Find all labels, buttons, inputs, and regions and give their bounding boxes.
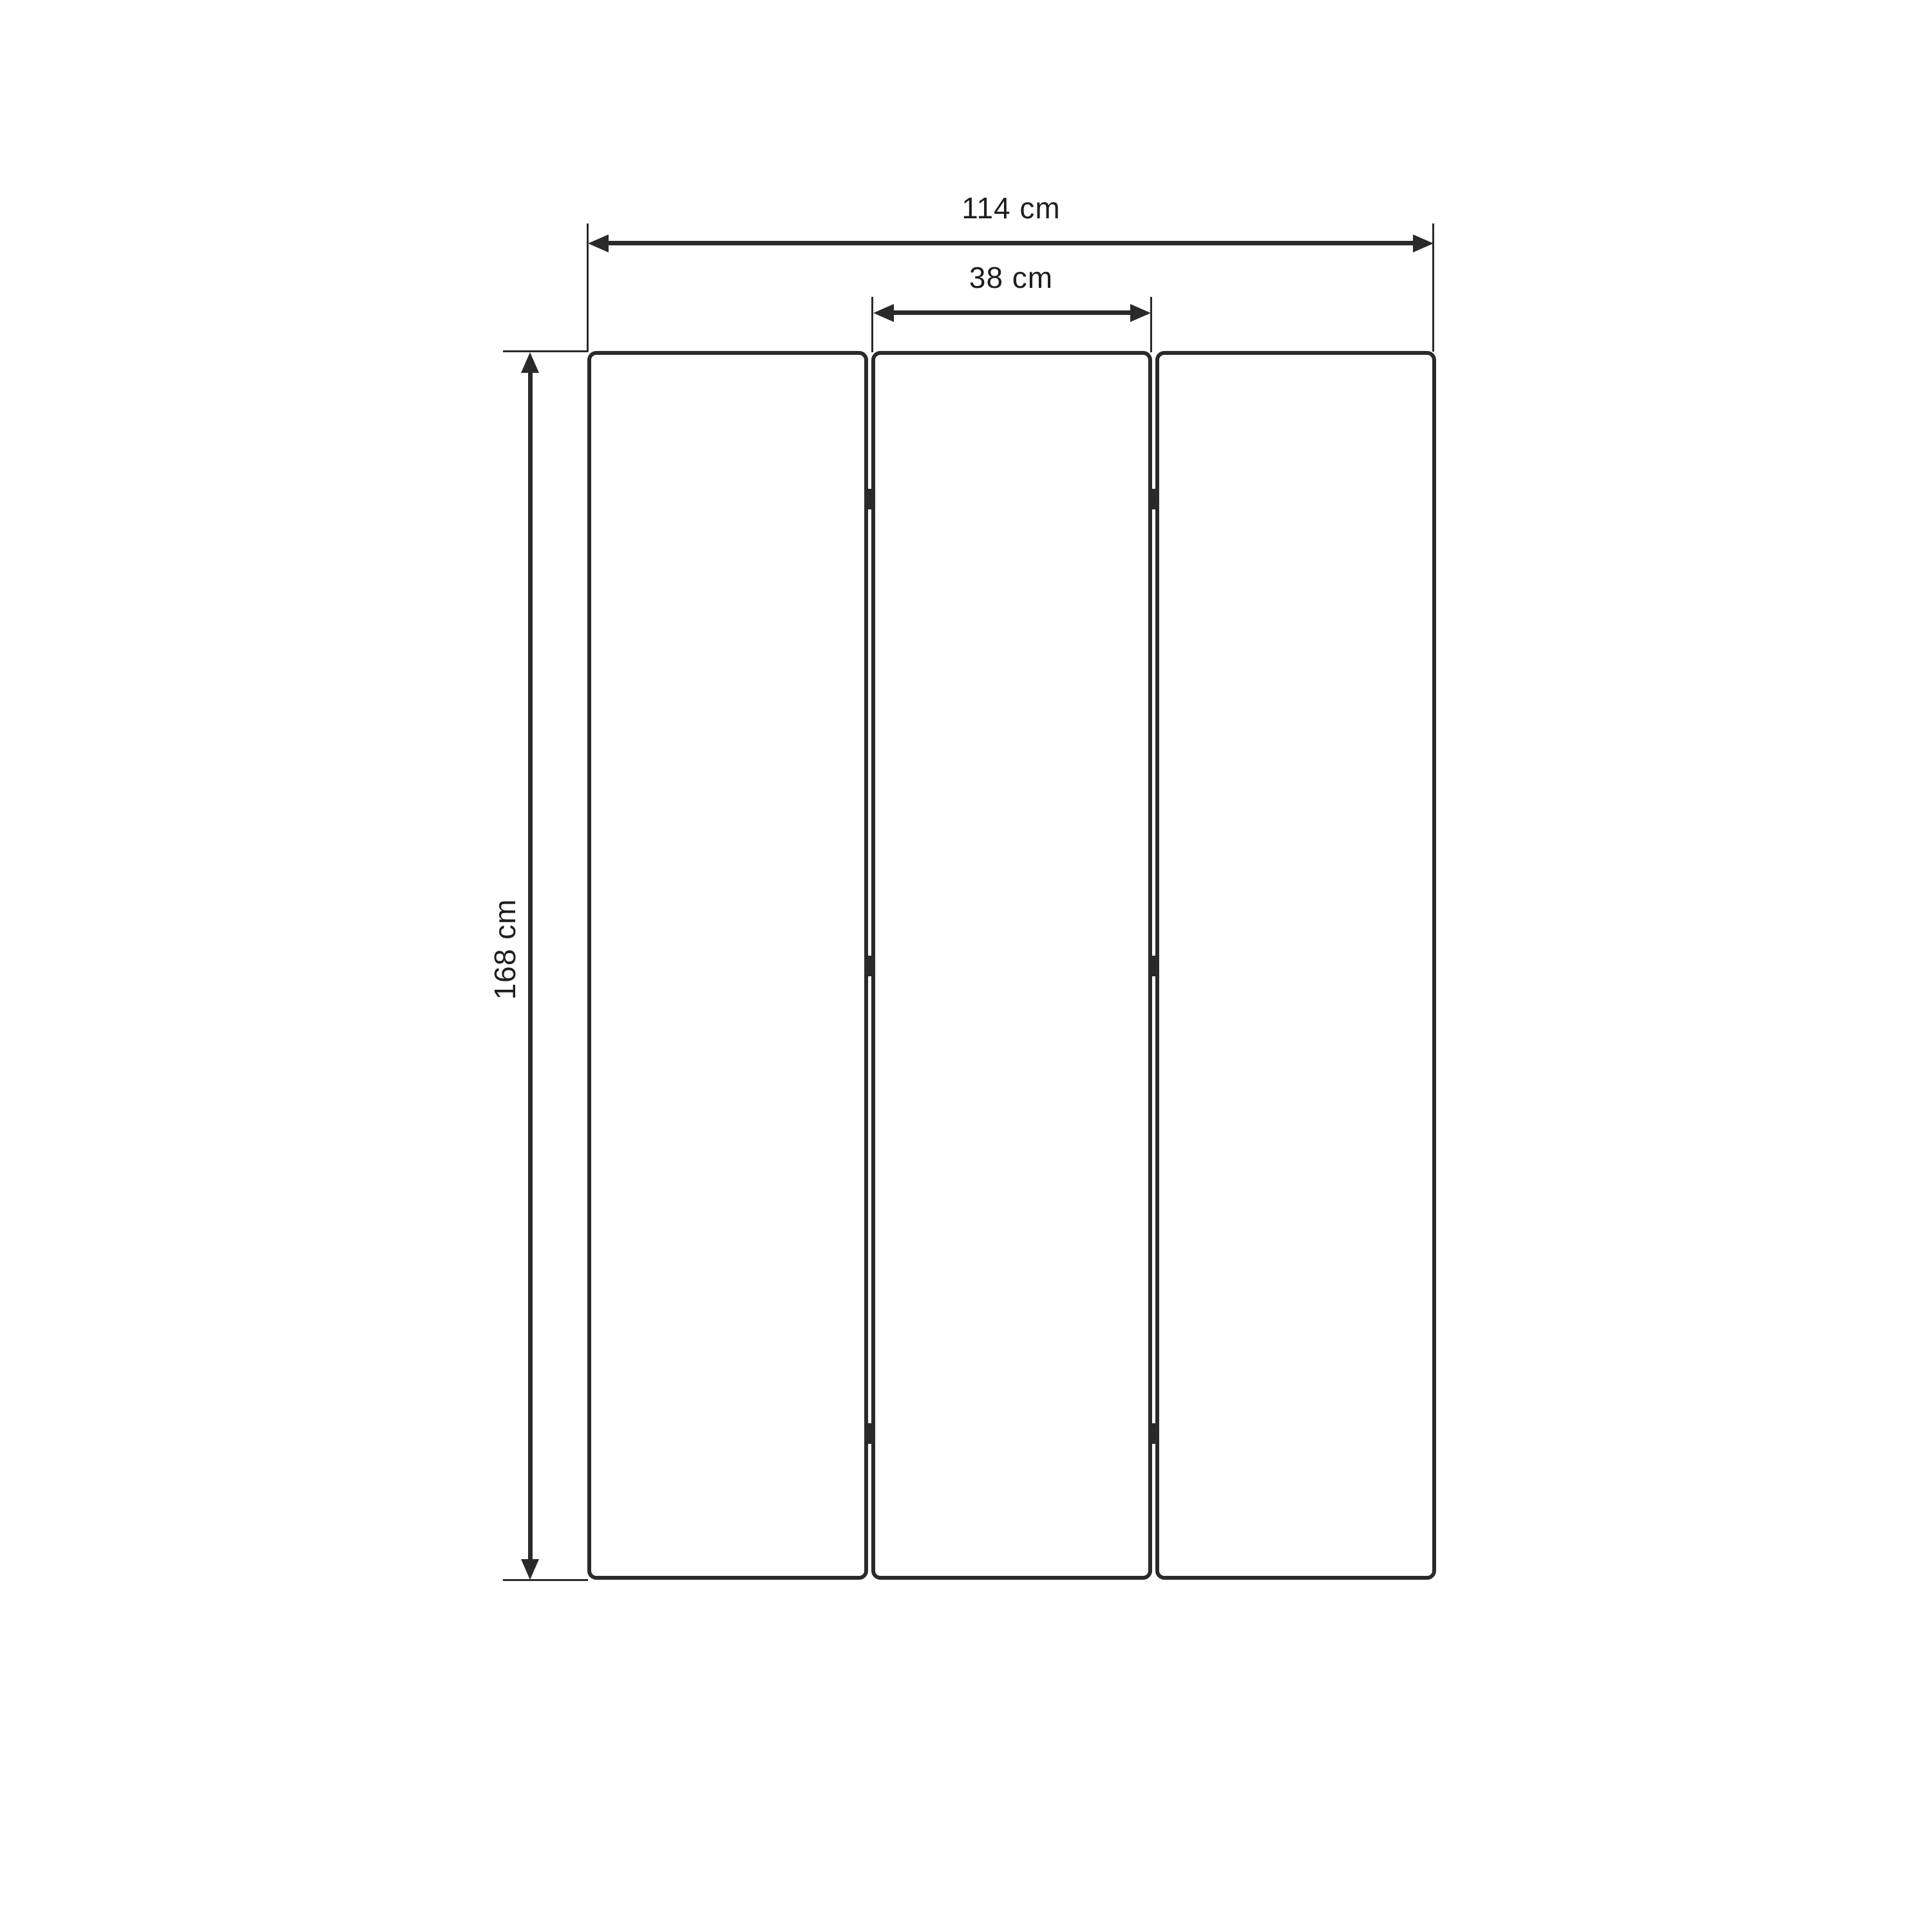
dimension-line-panel-width <box>889 310 1133 315</box>
hinge <box>864 1423 875 1444</box>
arrow-down-icon <box>521 1559 539 1580</box>
hinge <box>864 489 875 509</box>
height-label: 168 cm <box>486 846 524 1052</box>
dimension-line-height <box>528 368 533 1564</box>
extension-line-height-bottom <box>503 1579 588 1581</box>
total-width-label: 114 cm <box>882 191 1140 225</box>
panel-width-label: 38 cm <box>882 260 1140 295</box>
furniture-dimension-diagram: 114 cm 38 cm 168 cm <box>0 0 1932 1932</box>
panel-center <box>871 351 1152 1580</box>
arrow-left-icon <box>873 304 894 322</box>
panel-left <box>587 351 868 1580</box>
arrow-left-icon <box>588 234 609 252</box>
hinge <box>864 956 875 976</box>
arrow-up-icon <box>521 352 539 373</box>
arrow-right-icon <box>1413 234 1434 252</box>
panel-right <box>1155 351 1436 1580</box>
dimension-line-total-width <box>603 241 1418 245</box>
extension-line-height-top <box>503 350 588 352</box>
hinge <box>1148 956 1159 976</box>
hinge <box>1148 1423 1159 1444</box>
hinge <box>1148 489 1159 509</box>
arrow-right-icon <box>1130 304 1151 322</box>
